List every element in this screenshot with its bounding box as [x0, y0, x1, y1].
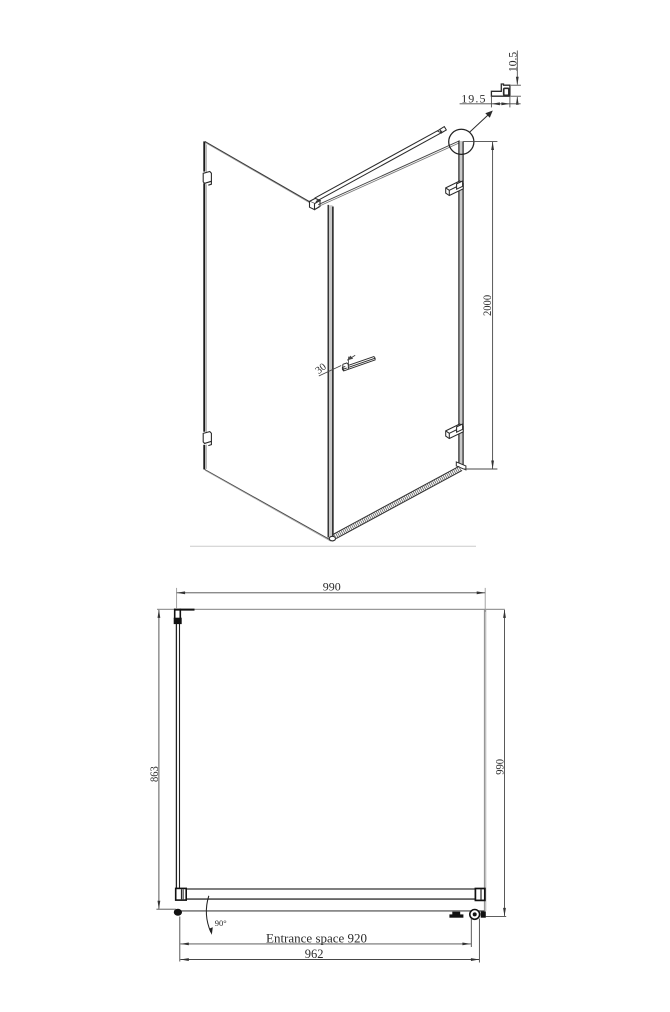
svg-text:962: 962 [305, 947, 324, 961]
svg-text:90°: 90° [215, 918, 227, 928]
svg-text:863: 863 [149, 766, 162, 782]
svg-text:990: 990 [494, 759, 507, 775]
svg-text:10.5: 10.5 [506, 52, 519, 72]
svg-text:Entrance space 920: Entrance space 920 [266, 930, 367, 945]
svg-text:30: 30 [314, 362, 329, 377]
svg-text:19.5: 19.5 [461, 92, 486, 106]
svg-text:990: 990 [323, 579, 341, 593]
svg-text:2000: 2000 [481, 295, 494, 316]
